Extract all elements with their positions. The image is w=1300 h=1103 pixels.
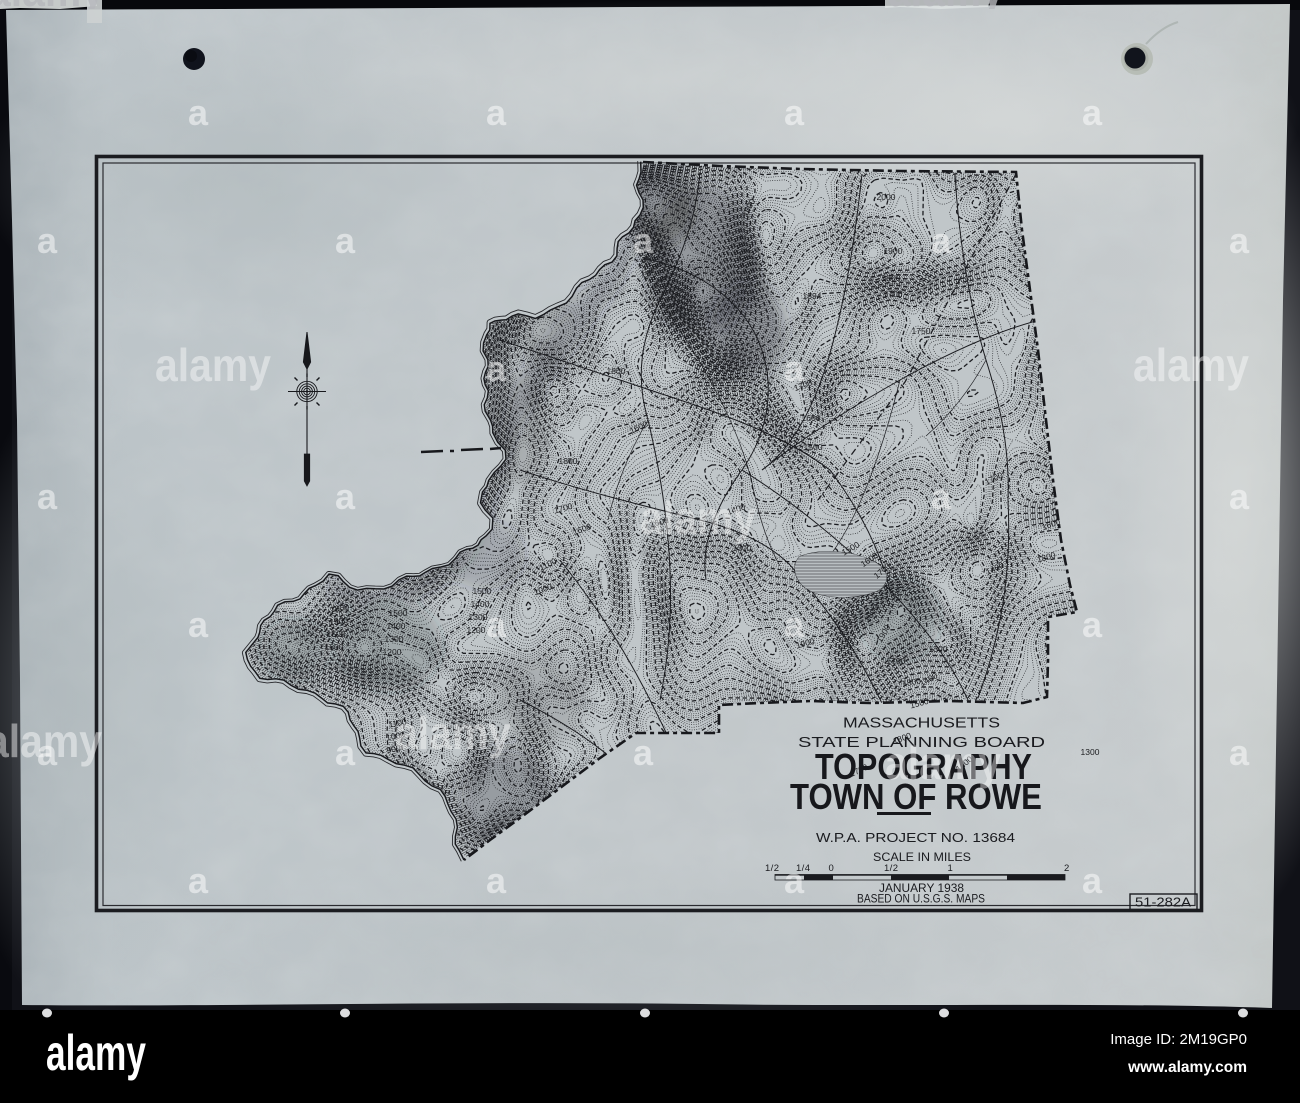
svg-text:BASED ON U.S.G.S. MAPS: BASED ON U.S.G.S. MAPS — [857, 894, 985, 906]
svg-text:alamy: alamy — [885, 737, 1001, 789]
svg-text:1700: 1700 — [887, 656, 906, 666]
svg-text:1750: 1750 — [912, 326, 931, 336]
svg-text:1300: 1300 — [929, 644, 948, 654]
svg-text:a: a — [1229, 732, 1250, 773]
svg-text:a: a — [1082, 860, 1103, 901]
svg-text:a: a — [784, 92, 805, 133]
svg-text:1900: 1900 — [884, 246, 903, 256]
svg-text:a: a — [335, 220, 356, 261]
svg-text:2: 2 — [1064, 863, 1069, 874]
svg-text:1200: 1200 — [467, 625, 486, 635]
svg-text:1500: 1500 — [473, 586, 492, 596]
svg-text:1894: 1894 — [803, 291, 822, 301]
svg-text:1/2: 1/2 — [884, 863, 898, 874]
svg-text:a: a — [1229, 220, 1250, 261]
svg-text:1700: 1700 — [884, 289, 903, 299]
svg-text:a: a — [486, 92, 507, 133]
svg-text:51-282A: 51-282A — [1135, 895, 1191, 910]
svg-text:SCALE IN MILES: SCALE IN MILES — [873, 850, 971, 864]
svg-text:alamy: alamy — [395, 707, 511, 759]
svg-text:a: a — [784, 604, 805, 645]
svg-text:1300: 1300 — [733, 543, 752, 553]
svg-text:a: a — [633, 220, 654, 261]
svg-text:0: 0 — [829, 863, 834, 874]
svg-text:1800: 1800 — [559, 456, 578, 466]
svg-text:a: a — [1082, 604, 1103, 645]
svg-text:a: a — [486, 604, 507, 645]
svg-text:a: a — [335, 476, 356, 517]
svg-text:1500: 1500 — [389, 608, 408, 618]
svg-text:1600: 1600 — [325, 642, 344, 652]
svg-text:a: a — [188, 860, 209, 901]
svg-text:a: a — [633, 732, 654, 773]
svg-text:1200: 1200 — [383, 647, 402, 657]
svg-text:1500: 1500 — [804, 442, 823, 452]
svg-text:a: a — [486, 348, 507, 389]
svg-text:a: a — [1082, 92, 1103, 133]
svg-text:1400: 1400 — [387, 621, 406, 631]
svg-text:1800: 1800 — [607, 366, 626, 376]
svg-text:1: 1 — [948, 863, 953, 874]
svg-text:1300: 1300 — [469, 612, 488, 622]
svg-text:a: a — [37, 220, 58, 261]
svg-text:a: a — [784, 860, 805, 901]
svg-text:alamy: alamy — [155, 339, 271, 391]
svg-text:alamy: alamy — [1133, 339, 1249, 391]
svg-text:a: a — [335, 732, 356, 773]
svg-text:a: a — [931, 220, 952, 261]
svg-text:alamy: alamy — [0, 715, 102, 767]
svg-text:1600: 1600 — [802, 413, 821, 423]
svg-text:MASSACHUSETTS: MASSACHUSETTS — [843, 715, 1000, 732]
svg-text:www.alamy.com: www.alamy.com — [1127, 1059, 1247, 1076]
svg-text:1/2: 1/2 — [765, 863, 779, 874]
svg-text:alamy: alamy — [46, 1026, 146, 1081]
svg-text:Image ID: 2M19GP0: Image ID: 2M19GP0 — [1110, 1031, 1247, 1048]
svg-text:a: a — [37, 476, 58, 517]
svg-text:W.P.A. PROJECT NO. 13684: W.P.A. PROJECT NO. 13684 — [816, 830, 1015, 845]
svg-text:a: a — [188, 92, 209, 133]
svg-text:alamy: alamy — [640, 492, 756, 544]
svg-text:1300: 1300 — [1081, 747, 1100, 757]
svg-text:a: a — [486, 860, 507, 901]
svg-text:a: a — [784, 348, 805, 389]
svg-text:1500: 1500 — [327, 629, 346, 639]
svg-text:1800: 1800 — [882, 273, 901, 283]
svg-text:2000: 2000 — [877, 192, 896, 202]
svg-text:a: a — [931, 476, 952, 517]
svg-text:1300: 1300 — [385, 634, 404, 644]
svg-text:a: a — [1229, 476, 1250, 517]
svg-text:a: a — [188, 604, 209, 645]
